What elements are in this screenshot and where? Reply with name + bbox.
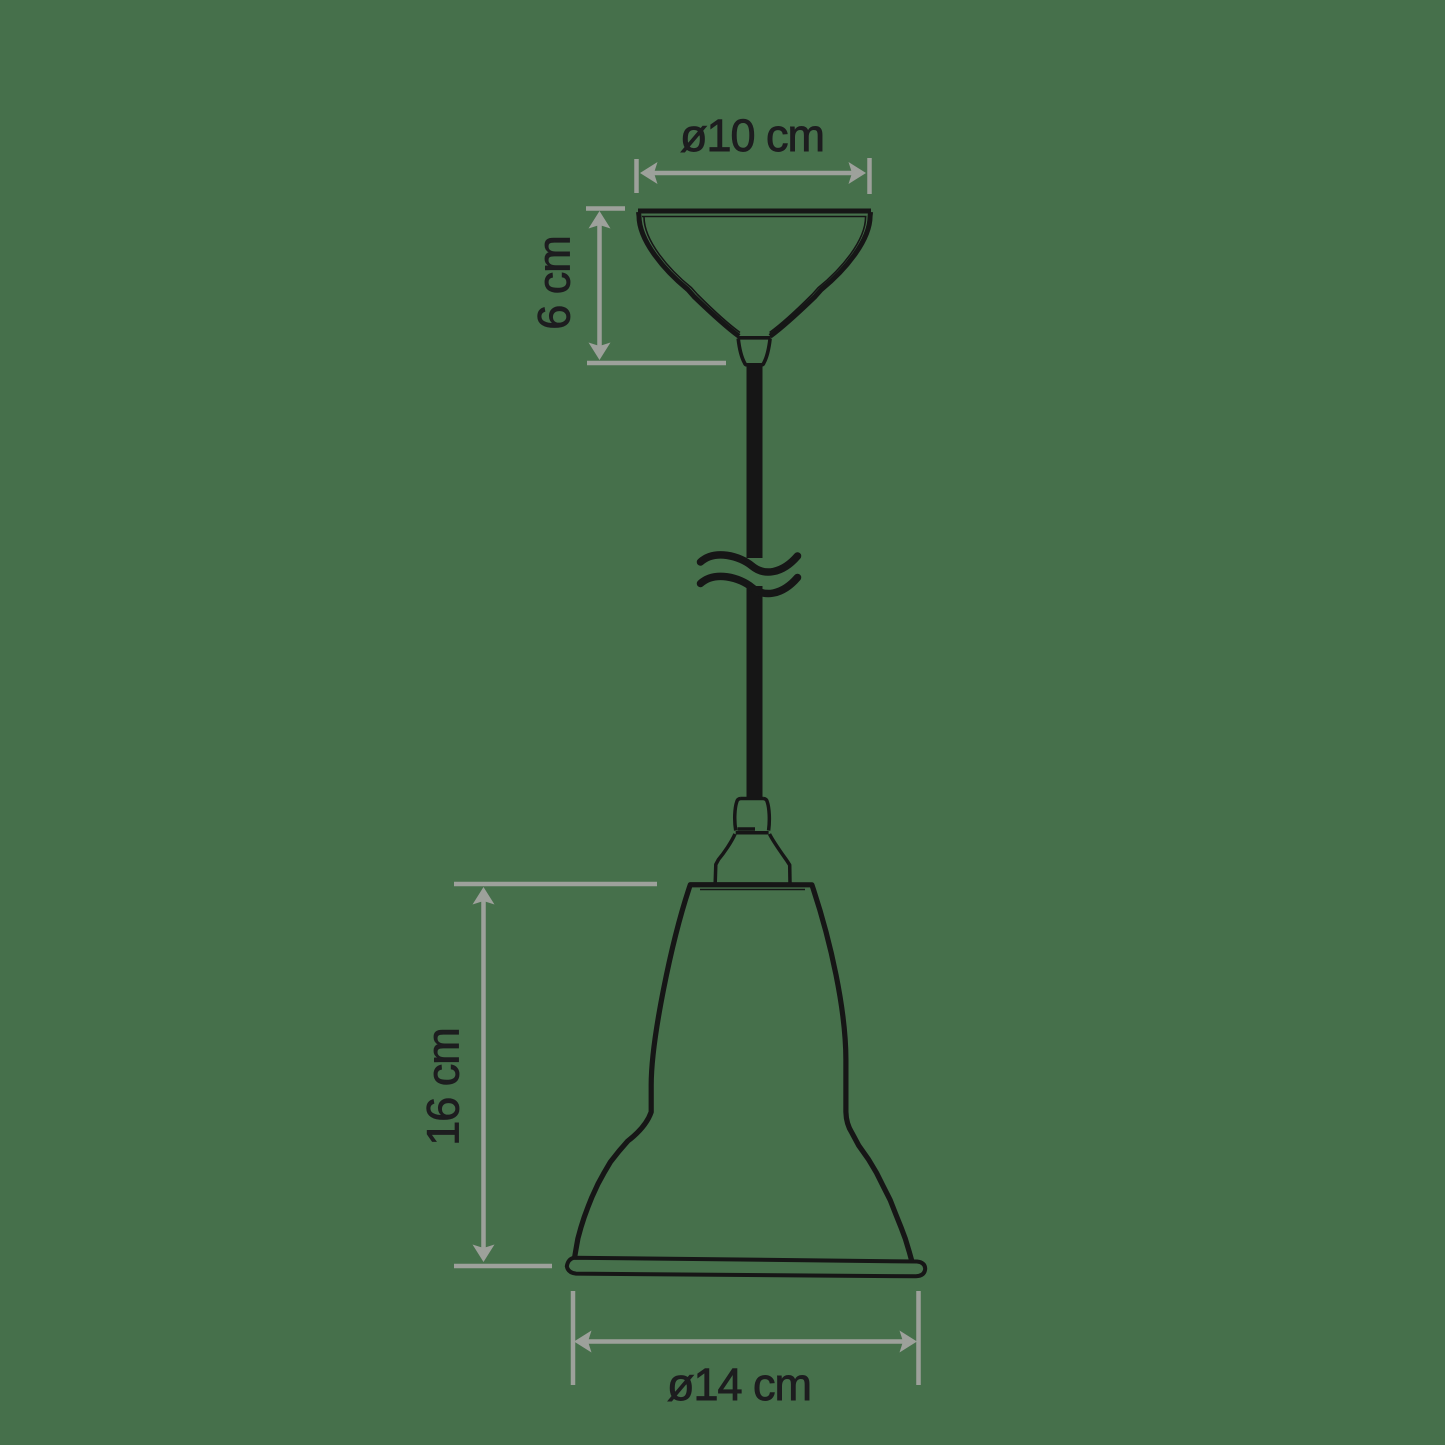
svg-text:ø14 cm: ø14 cm xyxy=(667,1359,811,1410)
svg-text:ø10 cm: ø10 cm xyxy=(680,110,824,161)
svg-text:6 cm: 6 cm xyxy=(529,236,580,330)
svg-text:16 cm: 16 cm xyxy=(418,1028,469,1146)
